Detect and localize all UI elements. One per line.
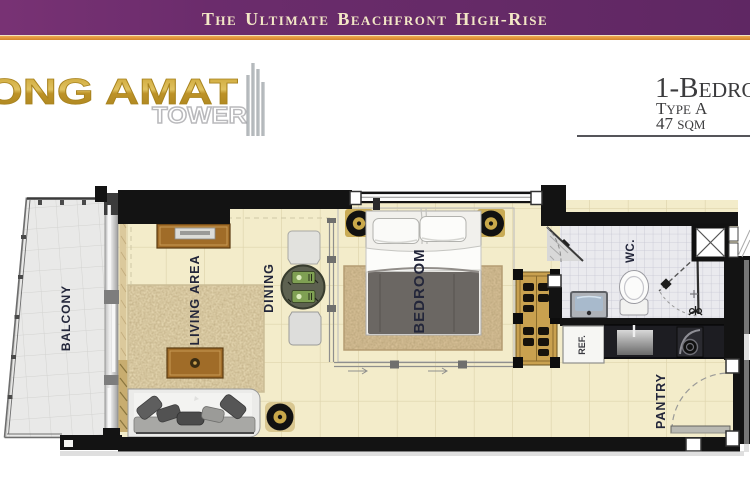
svg-text:WC.: WC. bbox=[625, 239, 637, 263]
svg-text:REF.: REF. bbox=[577, 335, 587, 355]
svg-text:PANTRY: PANTRY bbox=[654, 373, 668, 429]
svg-text:BEDROOM: BEDROOM bbox=[411, 248, 428, 333]
svg-text:DINING: DINING bbox=[262, 263, 276, 313]
svg-text:BALCONY: BALCONY bbox=[59, 285, 73, 351]
svg-text:LIVING AREA: LIVING AREA bbox=[188, 254, 202, 345]
